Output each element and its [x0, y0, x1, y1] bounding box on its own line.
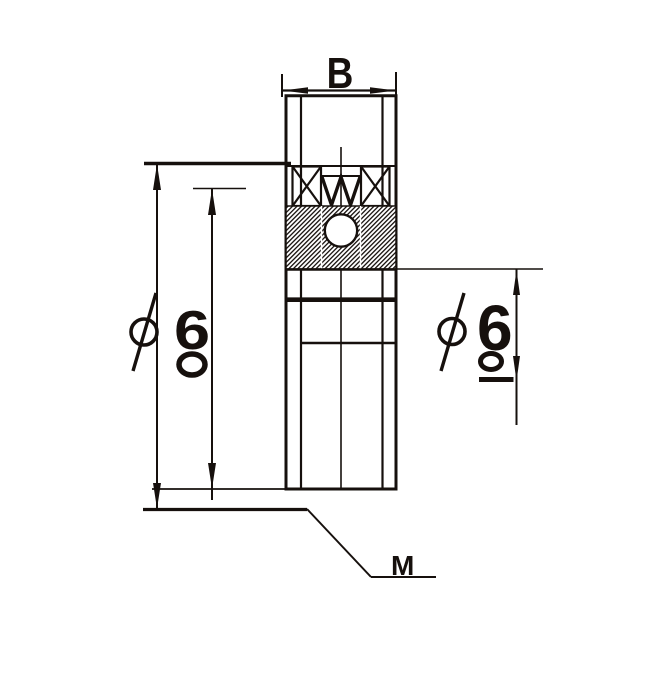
- svg-text:M: M: [391, 550, 414, 581]
